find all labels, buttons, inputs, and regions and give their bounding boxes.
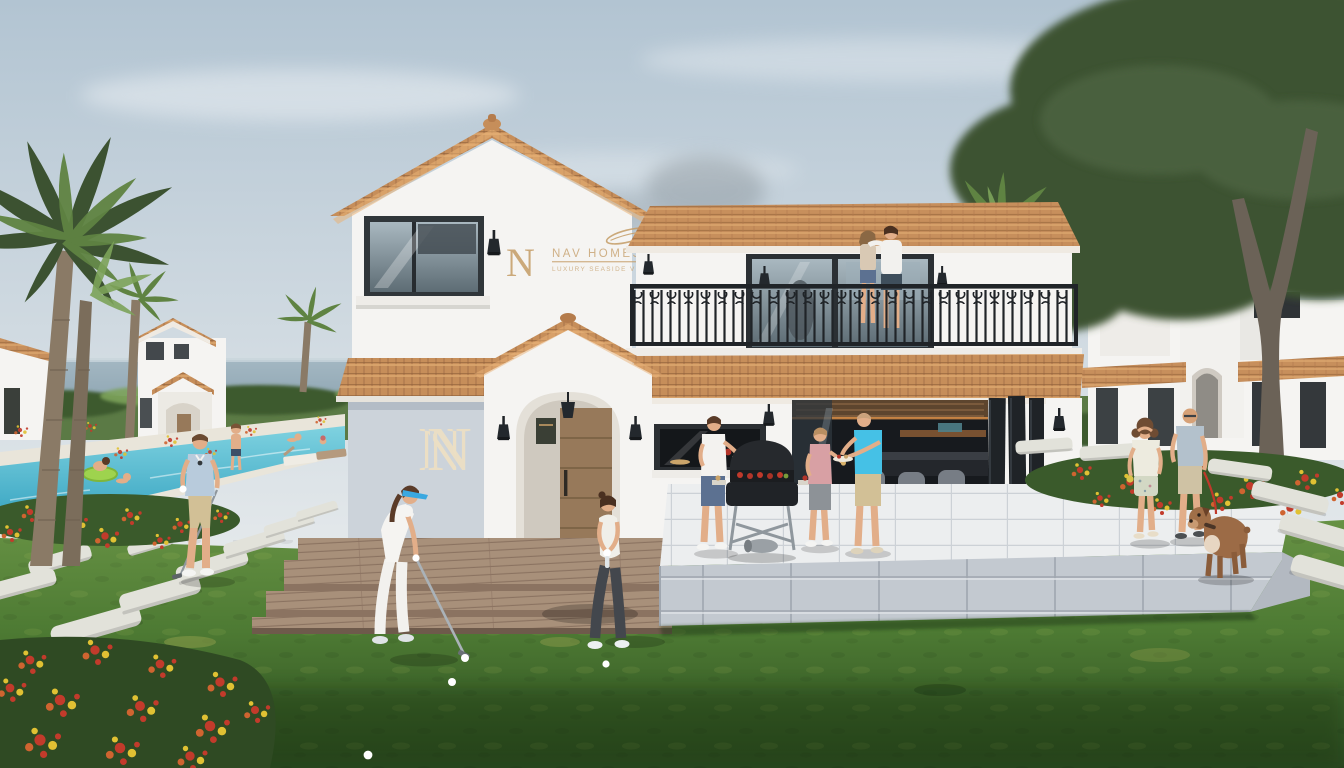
swim-cap (320, 435, 325, 440)
door-handle (564, 470, 567, 496)
scene-villa-rendering: N NAV HOMES LUXURY SEASIDE VILLAS (0, 0, 1344, 768)
wall-monogram-front: N (427, 416, 472, 484)
wall-monogram: N N N (418, 416, 472, 484)
entrance-plaque (536, 418, 556, 444)
tower-window (356, 216, 490, 309)
brand-monogram: N (506, 240, 535, 285)
skirt-roof-right (624, 354, 1084, 400)
